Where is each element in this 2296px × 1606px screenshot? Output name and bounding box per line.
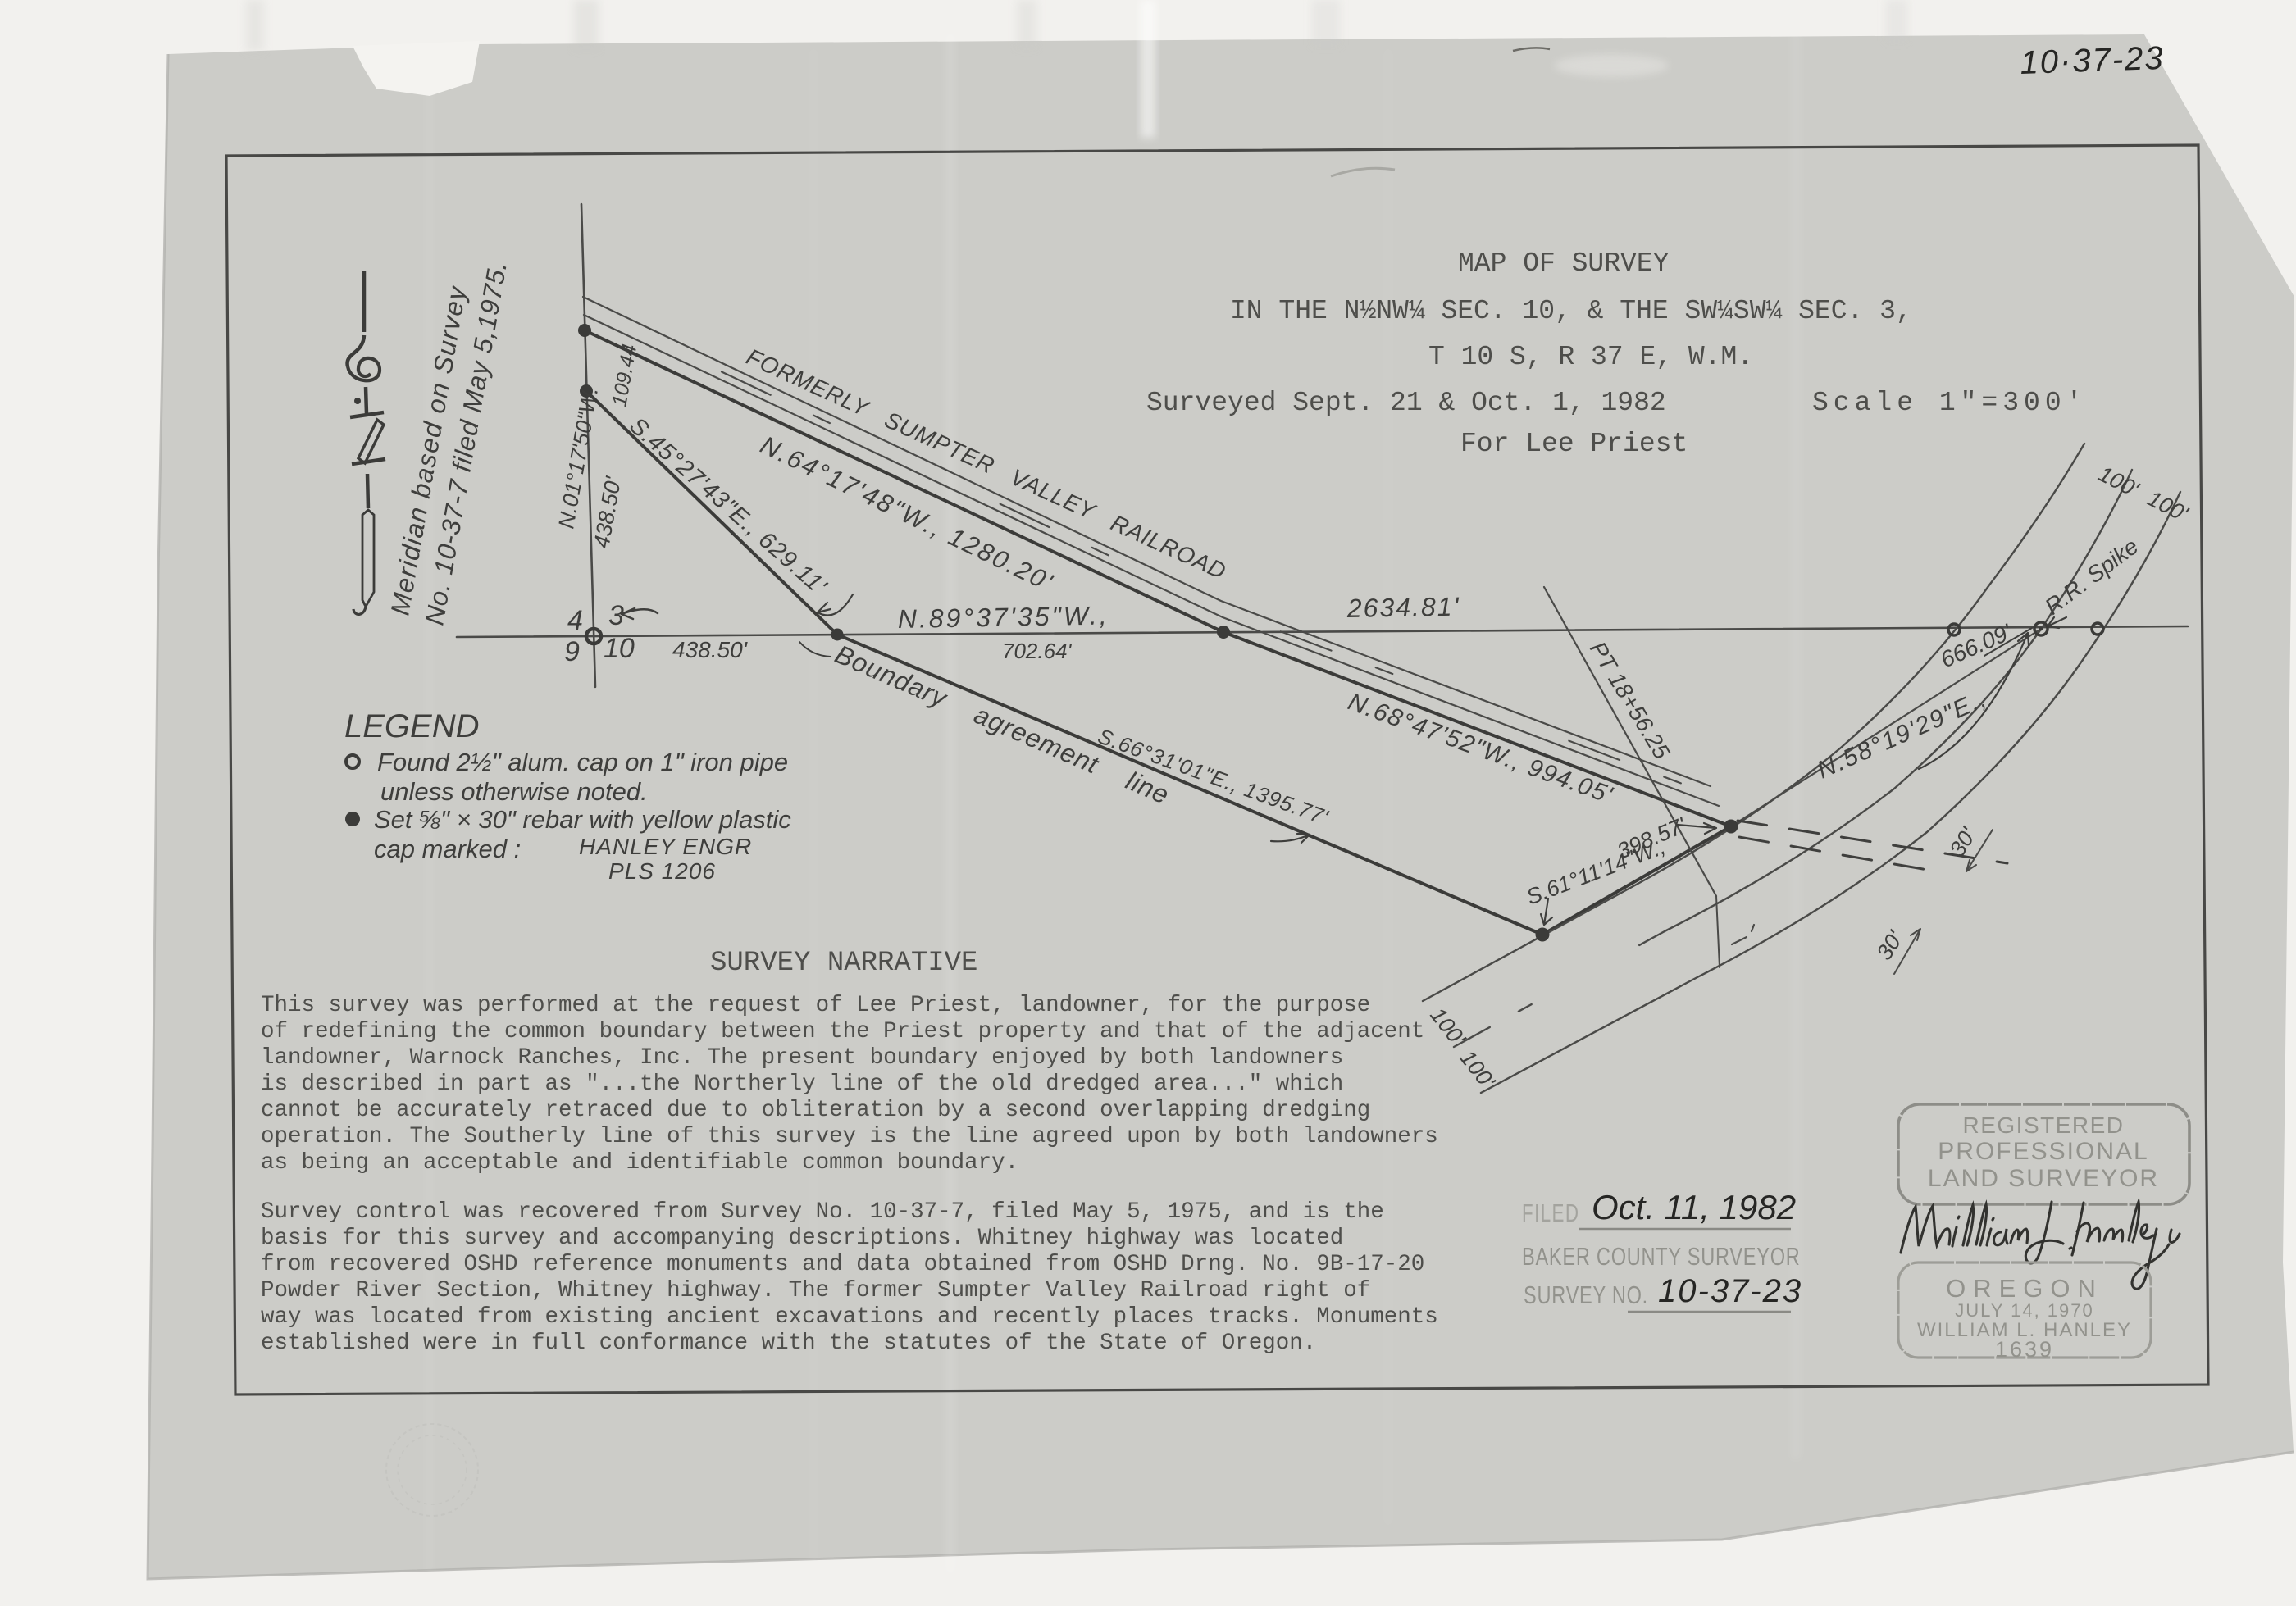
svg-text:SURVEY NO.: SURVEY NO. xyxy=(1524,1281,1648,1309)
svg-text:1639: 1639 xyxy=(1995,1337,2054,1362)
svg-text:T 10 S, R 37 E, W.M.: T 10 S, R 37 E, W.M. xyxy=(1428,342,1753,372)
svg-text:N.89°37'35"W.,: N.89°37'35"W., xyxy=(897,601,1109,634)
svg-text:Oct. 11, 1982: Oct. 11, 1982 xyxy=(1592,1188,1796,1226)
svg-text:SURVEY NARRATIVE: SURVEY NARRATIVE xyxy=(710,948,977,979)
svg-text:10: 10 xyxy=(604,633,635,664)
svg-text:way was located from existing: way was located from existing ancient ex… xyxy=(261,1304,1438,1330)
svg-text:MAP OF SURVEY: MAP OF SURVEY xyxy=(1458,248,1670,279)
svg-text:HANLEY ENGR: HANLEY ENGR xyxy=(579,834,752,859)
svg-text:4: 4 xyxy=(567,605,583,636)
svg-text:Scale 1"=300': Scale 1"=300' xyxy=(1812,388,2087,418)
svg-text:IN THE N½NW¼ SEC. 10, & THE SW: IN THE N½NW¼ SEC. 10, & THE SW¼SW¼ SEC. … xyxy=(1230,296,1912,326)
svg-text:9: 9 xyxy=(564,636,580,667)
svg-text:This survey was performed at t: This survey was performed at the request… xyxy=(261,993,1370,1018)
svg-text:702.64': 702.64' xyxy=(1002,639,1073,663)
svg-text:basis for this survey and acco: basis for this survey and accompanying d… xyxy=(261,1226,1343,1251)
svg-text:JULY 14, 1970: JULY 14, 1970 xyxy=(1955,1300,2094,1321)
svg-text:Found 2½" alum. cap on 1" iron: Found 2½" alum. cap on 1" iron pipe xyxy=(377,748,788,776)
svg-text:PROFESSIONAL: PROFESSIONAL xyxy=(1938,1138,2148,1165)
svg-text:10·37-23: 10·37-23 xyxy=(2020,40,2166,81)
svg-text:LEGEND: LEGEND xyxy=(344,708,480,744)
svg-text:operation. The Southerly line: operation. The Southerly line of this su… xyxy=(261,1124,1438,1149)
svg-text:2634.81': 2634.81' xyxy=(1346,592,1460,623)
svg-text:established were in full confo: established were in full conformance wit… xyxy=(261,1331,1316,1356)
svg-text:OREGON: OREGON xyxy=(1946,1274,2103,1303)
svg-text:LAND SURVEYOR: LAND SURVEYOR xyxy=(1928,1165,2159,1192)
svg-text:cannot be accurately retraced: cannot be accurately retraced due to obl… xyxy=(261,1098,1370,1123)
svg-text:3: 3 xyxy=(608,600,624,631)
svg-text:REGISTERED: REGISTERED xyxy=(1962,1112,2124,1138)
svg-text:For Lee Priest: For Lee Priest xyxy=(1460,429,1688,459)
svg-text:Set ⅝" × 30" rebar with yellow: Set ⅝" × 30" rebar with yellow plastic xyxy=(374,805,791,834)
svg-text:from recovered OSHD reference: from recovered OSHD reference monuments … xyxy=(261,1252,1424,1277)
svg-text:Powder River Section, Whitney: Powder River Section, Whitney highway. T… xyxy=(261,1278,1370,1303)
svg-text:PLS 1206: PLS 1206 xyxy=(608,858,716,884)
svg-text:is described in part as "...th: is described in part as "...the Northerl… xyxy=(261,1071,1343,1097)
svg-text:FILED: FILED xyxy=(1522,1199,1579,1226)
svg-text:438.50': 438.50' xyxy=(672,637,749,662)
svg-text:Surveyed Sept. 21 & Oct. 1, 19: Surveyed Sept. 21 & Oct. 1, 1982 xyxy=(1146,388,1666,418)
svg-text:unless otherwise noted.: unless otherwise noted. xyxy=(380,777,648,806)
svg-text:10-37-23: 10-37-23 xyxy=(1658,1273,1802,1309)
svg-text:of redefining the common bound: of redefining the common boundary betwee… xyxy=(261,1019,1424,1044)
svg-text:as being an acceptable and ide: as being an acceptable and identifiable … xyxy=(261,1150,1018,1176)
svg-text:cap marked :: cap marked : xyxy=(374,835,521,863)
svg-text:Survey control was recovered f: Survey control was recovered from Survey… xyxy=(261,1199,1384,1225)
svg-text:BAKER COUNTY SURVEYOR: BAKER COUNTY SURVEYOR xyxy=(1522,1242,1801,1271)
svg-text:landowner, Warnock Ranches, In: landowner, Warnock Ranches, Inc. The pre… xyxy=(261,1045,1343,1071)
